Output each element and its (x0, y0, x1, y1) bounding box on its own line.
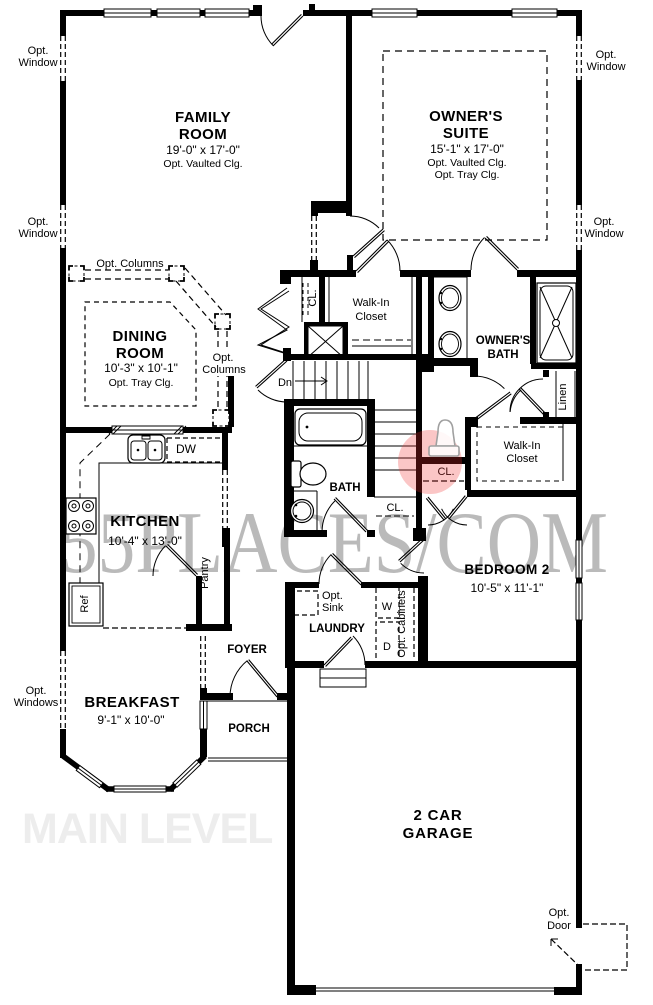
svg-text:Closet: Closet (355, 311, 386, 323)
svg-text:Walk-In: Walk-In (353, 297, 390, 309)
svg-text:OWNER'S: OWNER'S (429, 108, 503, 125)
svg-text:W: W (382, 601, 393, 613)
svg-text:Window: Window (18, 228, 57, 240)
svg-text:10'-4" x 13'-0": 10'-4" x 13'-0" (108, 534, 182, 548)
svg-text:GARAGE: GARAGE (403, 825, 474, 842)
svg-text:Pantry: Pantry (199, 557, 211, 589)
svg-text:19'-0" x 17'-0": 19'-0" x 17'-0" (166, 143, 240, 157)
svg-text:Window: Window (18, 57, 57, 69)
svg-text:BREAKFAST: BREAKFAST (84, 694, 179, 711)
svg-text:ROOM: ROOM (116, 345, 164, 362)
svg-text:Opt.: Opt. (322, 590, 343, 602)
svg-text:CL.: CL. (307, 289, 319, 306)
svg-text:FOYER: FOYER (227, 644, 267, 656)
svg-text:Opt. Vaulted Clg.: Opt. Vaulted Clg. (427, 157, 506, 169)
svg-text:Opt. Tray Clg.: Opt. Tray Clg. (435, 169, 500, 181)
svg-text:ROOM: ROOM (179, 126, 227, 143)
svg-text:PORCH: PORCH (228, 723, 270, 735)
svg-text:9'-1" x 10'-0": 9'-1" x 10'-0" (97, 713, 164, 727)
svg-text:10'-3" x 10'-1": 10'-3" x 10'-1" (104, 361, 178, 375)
svg-text:Door: Door (547, 920, 571, 932)
svg-text:Windows: Windows (14, 697, 59, 709)
svg-text:SUITE: SUITE (443, 125, 489, 142)
svg-text:CL.: CL. (386, 502, 403, 514)
svg-text:10'-5" x 11'-1": 10'-5" x 11'-1" (471, 581, 544, 595)
svg-text:OWNER'S: OWNER'S (476, 335, 531, 347)
svg-text:Closet: Closet (506, 453, 537, 465)
svg-text:MAIN LEVEL: MAIN LEVEL (22, 805, 272, 853)
svg-text:Opt.: Opt. (26, 685, 47, 697)
svg-text:LAUNDRY: LAUNDRY (309, 623, 365, 635)
svg-text:BATH: BATH (329, 482, 360, 494)
svg-text:BEDROOM 2: BEDROOM 2 (464, 562, 549, 577)
svg-text:Opt.: Opt. (28, 45, 49, 57)
svg-text:D: D (383, 641, 391, 653)
svg-text:Opt. Cabinets: Opt. Cabinets (396, 590, 408, 658)
svg-text:BATH: BATH (487, 349, 518, 361)
svg-text:15'-1" x 17'-0": 15'-1" x 17'-0" (430, 142, 504, 156)
svg-text:Opt. Columns: Opt. Columns (96, 258, 164, 270)
svg-text:Window: Window (586, 61, 625, 73)
svg-text:Opt. Vaulted Clg.: Opt. Vaulted Clg. (163, 158, 242, 170)
svg-text:Opt.: Opt. (213, 352, 234, 364)
svg-text:Dn: Dn (278, 377, 292, 389)
svg-text:Walk-In: Walk-In (504, 440, 541, 452)
svg-text:Ref: Ref (79, 595, 91, 613)
svg-text:KITCHEN: KITCHEN (110, 513, 179, 530)
svg-text:Columns: Columns (202, 364, 246, 376)
svg-text:Opt. Tray Clg.: Opt. Tray Clg. (109, 377, 174, 389)
svg-text:DW: DW (176, 442, 197, 456)
svg-text:Opt.: Opt. (549, 907, 570, 919)
svg-text:Opt.: Opt. (28, 216, 49, 228)
svg-text:FAMILY: FAMILY (175, 109, 231, 126)
svg-text:2 CAR: 2 CAR (413, 807, 462, 824)
svg-text:DINING: DINING (113, 328, 168, 345)
svg-text:Opt.: Opt. (596, 49, 617, 61)
svg-text:Sink: Sink (322, 602, 344, 614)
svg-text:Window: Window (584, 228, 623, 240)
svg-text:Linen: Linen (557, 384, 569, 411)
svg-text:Opt.: Opt. (594, 216, 615, 228)
